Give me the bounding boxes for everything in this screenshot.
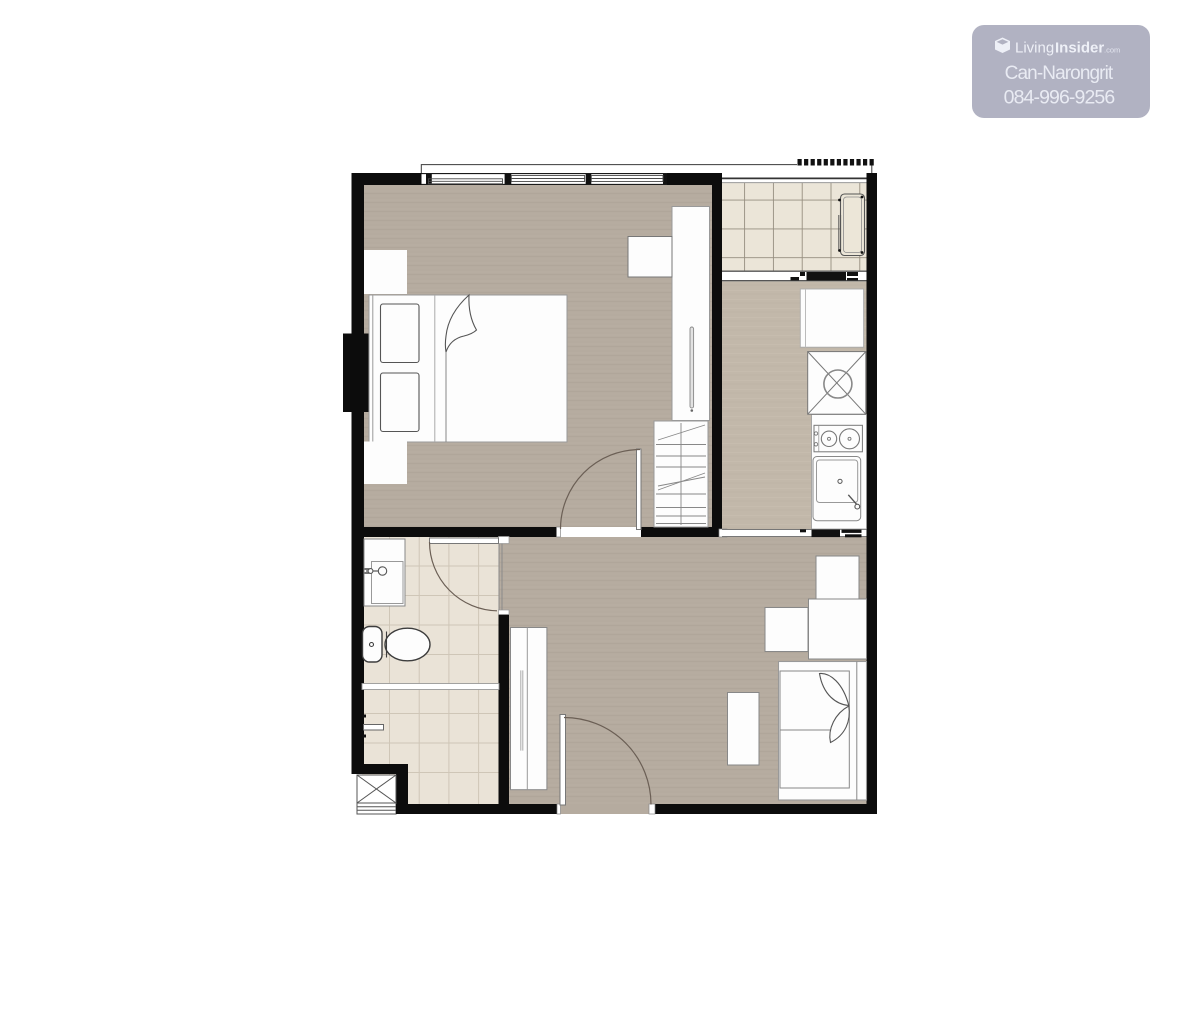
svg-text:.com: .com — [1104, 46, 1120, 55]
svg-text:Insider: Insider — [1055, 40, 1104, 57]
svg-text:084-996-9256: 084-996-9256 — [1004, 87, 1115, 109]
svg-text:Living: Living — [1015, 40, 1054, 57]
svg-text:Can-Narongrit: Can-Narongrit — [1005, 63, 1114, 84]
